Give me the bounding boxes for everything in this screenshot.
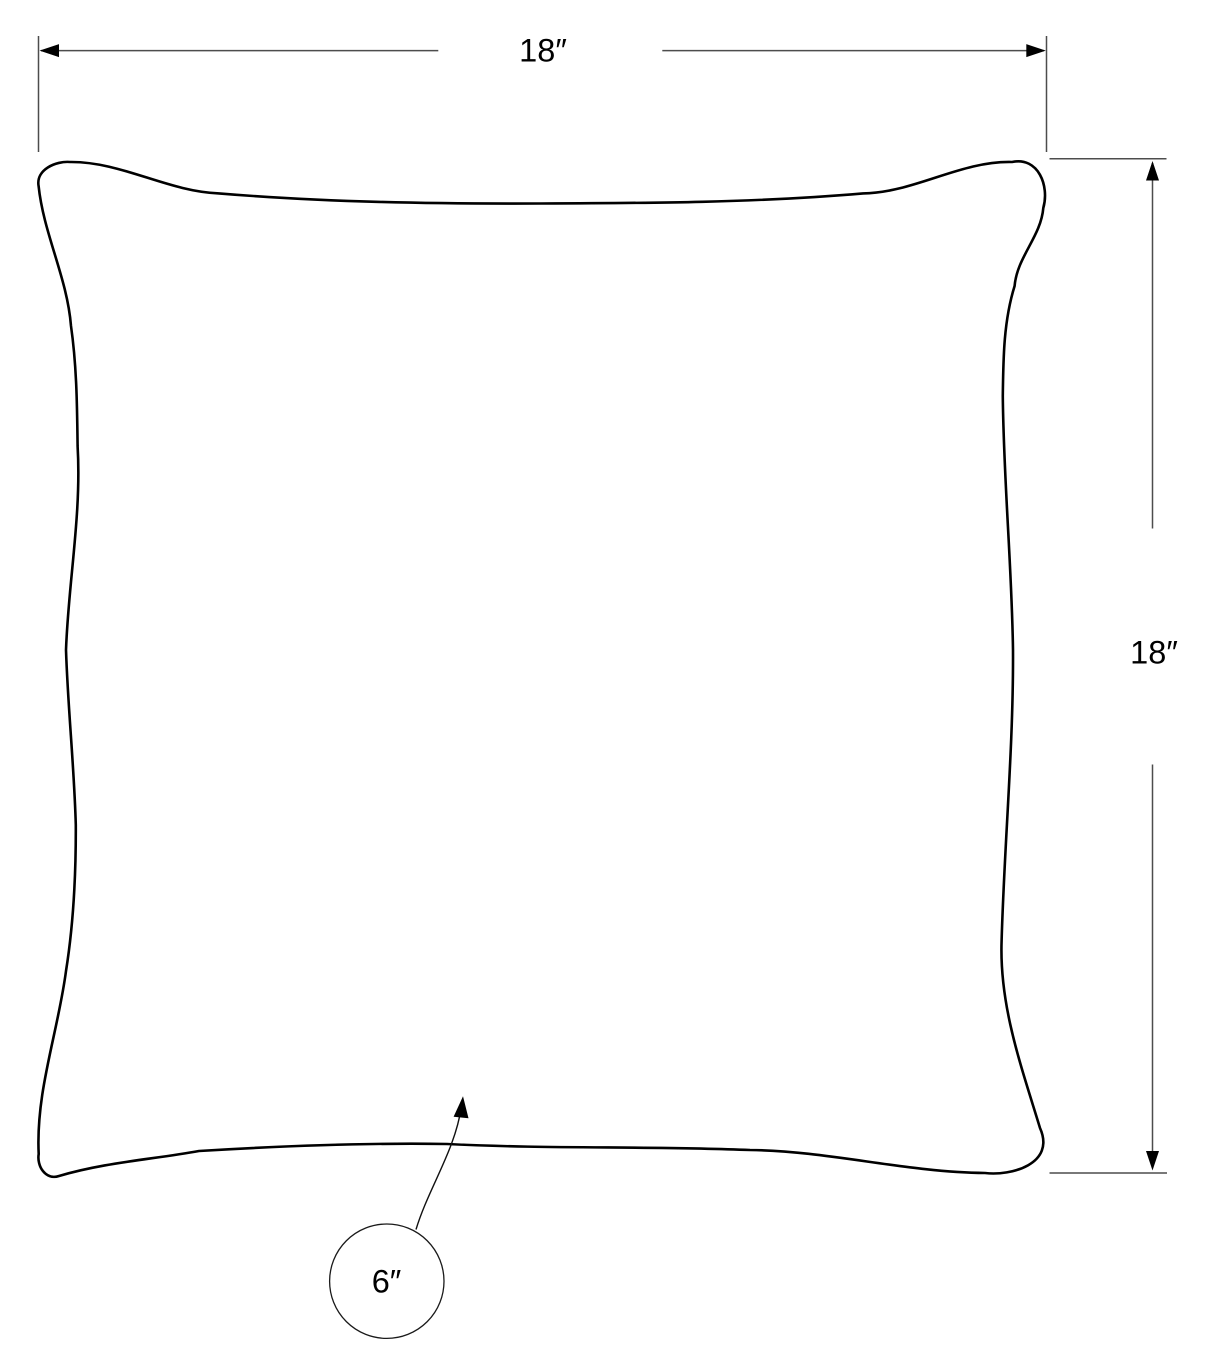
svg-text:18″: 18″ <box>519 33 567 69</box>
svg-text:18″: 18″ <box>1130 635 1178 671</box>
svg-text:6″: 6″ <box>372 1264 402 1300</box>
